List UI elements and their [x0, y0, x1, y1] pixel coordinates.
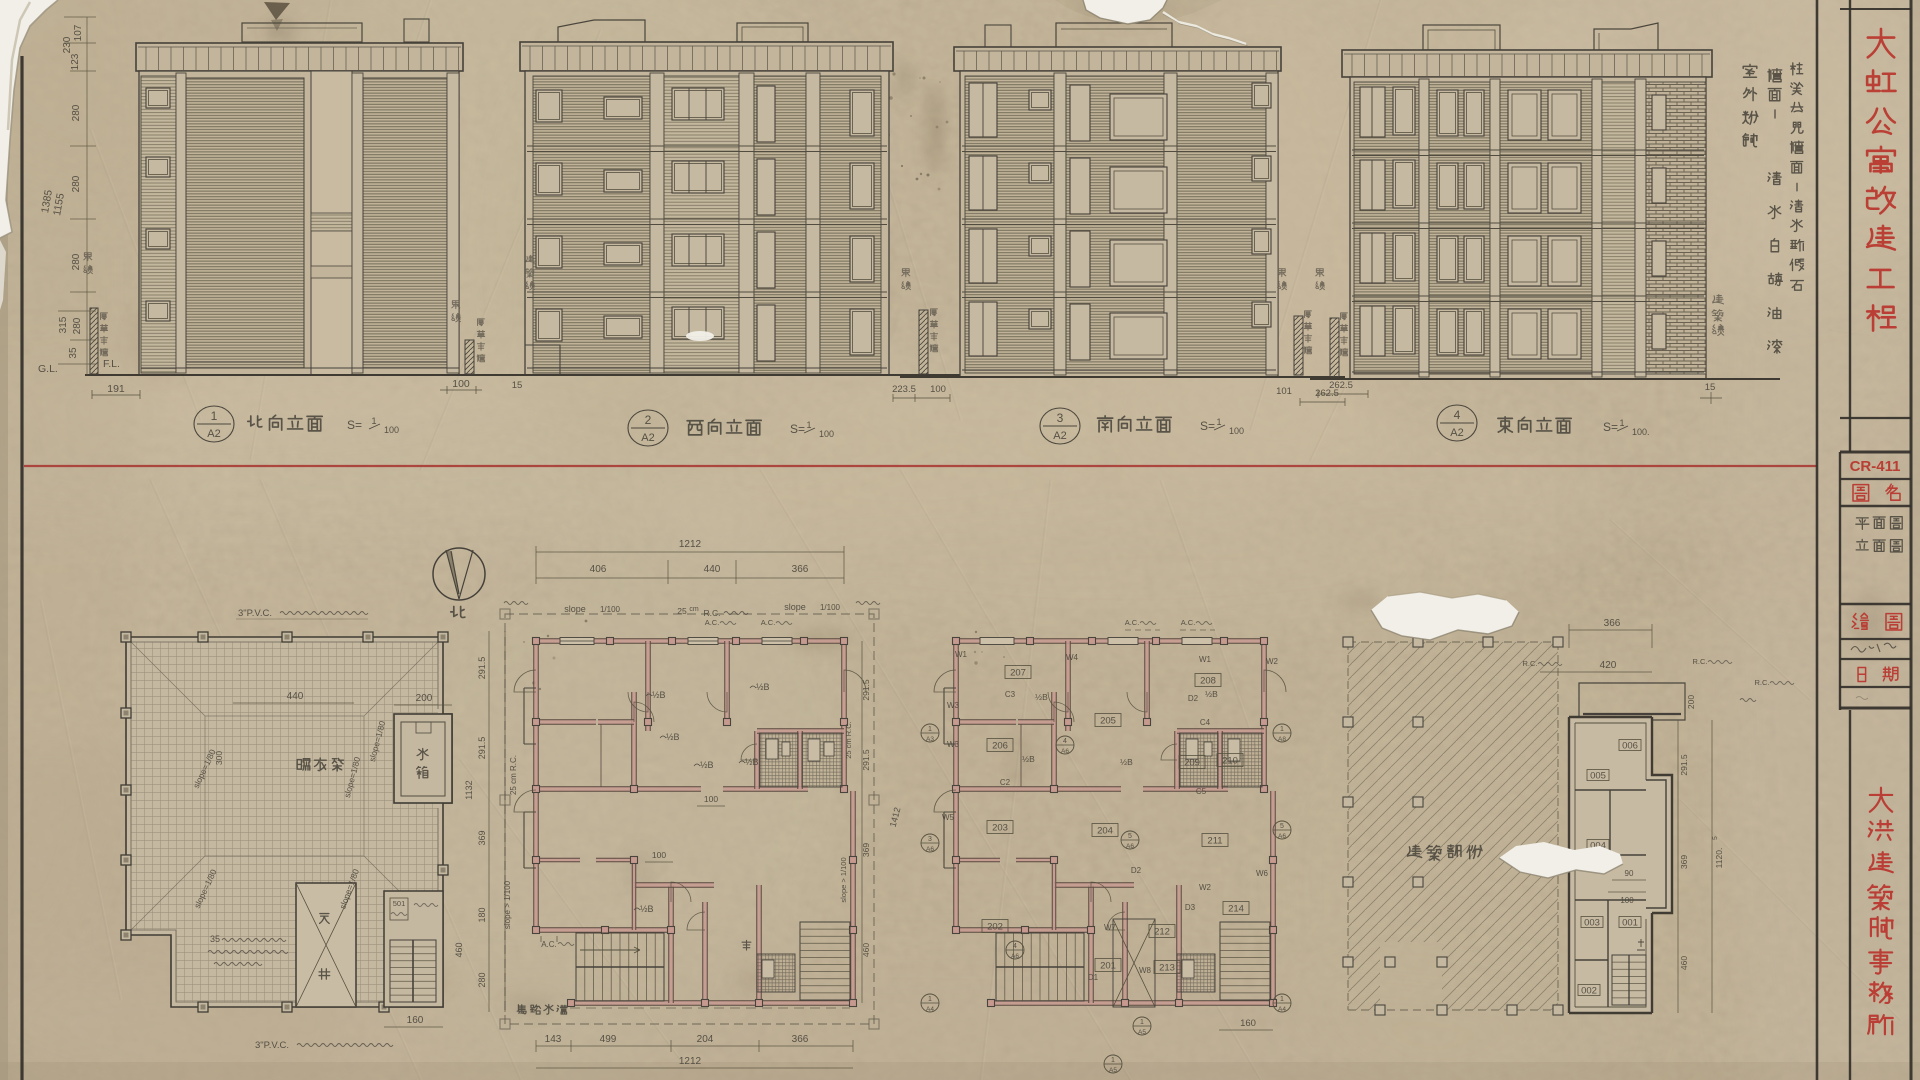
svg-text:½B: ½B	[700, 760, 714, 770]
svg-text:C5: C5	[1196, 787, 1207, 796]
svg-text:F.L.: F.L.	[103, 358, 120, 370]
svg-text:291.5: 291.5	[861, 679, 871, 701]
svg-text:100: 100	[1229, 426, 1244, 436]
svg-text:C4: C4	[1200, 718, 1211, 727]
svg-text:100: 100	[930, 384, 946, 395]
svg-text:143: 143	[545, 1034, 562, 1045]
svg-text:R.C.: R.C.	[1755, 678, 1770, 687]
svg-text:420: 420	[1600, 660, 1617, 671]
svg-text:315: 315	[58, 316, 69, 333]
svg-text:100: 100	[384, 425, 399, 435]
svg-text:209: 209	[1184, 758, 1200, 769]
svg-text:4: 4	[1013, 943, 1017, 950]
svg-text:S=: S=	[347, 418, 362, 432]
svg-text:107: 107	[73, 24, 84, 41]
svg-text:366: 366	[792, 564, 809, 575]
svg-text:1: 1	[806, 420, 811, 430]
svg-text:460: 460	[454, 942, 464, 957]
svg-text:A6: A6	[1278, 833, 1286, 840]
svg-text:291.5: 291.5	[1679, 754, 1689, 776]
svg-text:slope > 1/100: slope > 1/100	[839, 857, 848, 902]
svg-text:1: 1	[1280, 996, 1284, 1003]
svg-text:1132: 1132	[464, 780, 474, 799]
svg-text:100: 100	[452, 378, 470, 390]
svg-text:1: 1	[371, 416, 376, 426]
svg-text:223.5: 223.5	[892, 384, 916, 395]
svg-text:1: 1	[1280, 726, 1284, 733]
svg-text:slope: slope	[784, 602, 806, 612]
svg-text:slope: slope	[564, 604, 586, 614]
svg-text:5: 5	[1712, 836, 1719, 840]
svg-text:W2: W2	[1266, 657, 1279, 666]
svg-text:1: 1	[1140, 1019, 1144, 1026]
svg-text:A8: A8	[1278, 736, 1286, 743]
svg-text:W2: W2	[1199, 883, 1212, 892]
svg-text:101: 101	[1276, 386, 1292, 397]
svg-text:213: 213	[1159, 963, 1175, 974]
svg-text:25: 25	[677, 606, 687, 616]
svg-text:A2: A2	[207, 428, 220, 440]
svg-text:A4: A4	[1278, 1006, 1286, 1013]
svg-text:200: 200	[1686, 695, 1696, 709]
svg-text:A3: A3	[926, 736, 934, 743]
svg-text:160: 160	[1240, 1018, 1256, 1029]
svg-text:S=: S=	[1603, 420, 1618, 434]
svg-text:3"P.V.C.: 3"P.V.C.	[238, 608, 272, 619]
svg-text:½B: ½B	[1035, 692, 1048, 702]
svg-text:W4: W4	[1066, 653, 1079, 662]
svg-text:366: 366	[1604, 618, 1621, 629]
svg-text:D2: D2	[1131, 866, 1142, 875]
svg-text:499: 499	[600, 1034, 617, 1045]
svg-text:5: 5	[1128, 833, 1132, 840]
svg-text:slope > 1/100: slope > 1/100	[503, 880, 512, 929]
svg-text:280: 280	[71, 253, 82, 270]
svg-text:A.C.: A.C.	[1125, 618, 1140, 627]
svg-text:W7: W7	[1104, 923, 1117, 932]
svg-text:A2: A2	[1053, 430, 1066, 442]
svg-text:440: 440	[704, 564, 721, 575]
svg-text:200: 200	[416, 693, 433, 704]
svg-text:406: 406	[590, 564, 607, 575]
svg-text:1212: 1212	[679, 539, 702, 550]
svg-text:160: 160	[407, 1015, 424, 1026]
svg-text:369: 369	[477, 830, 487, 845]
svg-text:280: 280	[71, 104, 82, 121]
svg-text:A6: A6	[1011, 953, 1019, 960]
svg-text:C3: C3	[1005, 690, 1016, 699]
svg-text:1: 1	[928, 996, 932, 1003]
svg-text:204: 204	[697, 1034, 714, 1045]
svg-text:003: 003	[1584, 918, 1600, 929]
svg-text:cm: cm	[689, 606, 699, 613]
svg-text:291.5: 291.5	[477, 737, 487, 760]
svg-text:262.5: 262.5	[1329, 380, 1353, 391]
svg-text:3: 3	[1057, 411, 1064, 425]
svg-text:A4: A4	[926, 1006, 934, 1013]
svg-text:212: 212	[1154, 927, 1170, 938]
svg-text:D3: D3	[1185, 903, 1196, 912]
svg-text:A.C.: A.C.	[541, 940, 557, 949]
svg-text:291.5: 291.5	[861, 749, 871, 771]
svg-text:A5: A5	[1109, 1067, 1117, 1074]
svg-text:1: 1	[1619, 418, 1624, 428]
svg-text:1212: 1212	[679, 1056, 702, 1067]
svg-text:A.C.: A.C.	[1181, 618, 1196, 627]
svg-text:300: 300	[214, 751, 224, 765]
svg-text:100: 100	[652, 850, 666, 860]
svg-text:100: 100	[1620, 896, 1634, 905]
svg-text:460: 460	[1679, 956, 1689, 970]
svg-text:A5: A5	[1138, 1029, 1146, 1036]
svg-text:C2: C2	[1000, 778, 1011, 787]
svg-text:R.C.: R.C.	[1523, 659, 1538, 668]
svg-text:501: 501	[393, 899, 406, 908]
svg-text:D2: D2	[1188, 694, 1199, 703]
svg-text:½B: ½B	[756, 682, 770, 692]
svg-text:W5: W5	[942, 813, 955, 822]
svg-text:202: 202	[987, 922, 1003, 933]
svg-text:A.C.: A.C.	[705, 618, 720, 627]
svg-text:S=: S=	[1200, 419, 1215, 433]
svg-text:S=: S=	[790, 422, 805, 436]
svg-text:G.L.: G.L.	[38, 363, 58, 375]
svg-text:½B: ½B	[1022, 754, 1035, 764]
svg-text:005: 005	[1590, 771, 1606, 782]
svg-text:191: 191	[107, 383, 125, 395]
svg-text:A.C.: A.C.	[761, 618, 776, 627]
svg-text:366: 366	[792, 1034, 809, 1045]
svg-text:1/100: 1/100	[600, 605, 621, 614]
svg-text:1/100: 1/100	[820, 603, 841, 612]
svg-text:210: 210	[1222, 756, 1238, 767]
svg-text:R.C.: R.C.	[1693, 657, 1708, 666]
svg-text:CR-411: CR-411	[1850, 458, 1901, 475]
svg-text:207: 207	[1010, 668, 1026, 679]
svg-text:208: 208	[1200, 676, 1216, 687]
svg-text:4: 4	[1063, 738, 1067, 745]
svg-text:1: 1	[1111, 1057, 1115, 1064]
svg-text:440: 440	[287, 691, 304, 702]
svg-text:5: 5	[1280, 823, 1284, 830]
svg-text:A2: A2	[641, 432, 654, 444]
svg-text:100: 100	[704, 794, 718, 804]
svg-text:214: 214	[1228, 904, 1244, 915]
svg-text:3"P.V.C.: 3"P.V.C.	[255, 1040, 289, 1051]
svg-text:½B: ½B	[745, 757, 759, 767]
svg-text:A6: A6	[1126, 843, 1134, 850]
svg-text:006: 006	[1622, 741, 1638, 752]
svg-text:15: 15	[512, 380, 523, 391]
svg-text:206: 206	[992, 741, 1008, 752]
svg-text:1: 1	[928, 726, 932, 733]
svg-text:204: 204	[1097, 826, 1113, 837]
svg-text:½B: ½B	[1205, 689, 1218, 699]
svg-text:A6: A6	[926, 846, 934, 853]
svg-text:123: 123	[70, 53, 81, 70]
svg-text:1: 1	[211, 409, 218, 423]
svg-text:460: 460	[861, 943, 871, 957]
svg-text:½B: ½B	[640, 904, 654, 914]
svg-text:230: 230	[62, 36, 73, 53]
svg-text:A6: A6	[1061, 748, 1069, 755]
svg-text:001: 001	[1622, 918, 1638, 929]
svg-text:½B: ½B	[652, 690, 666, 700]
svg-text:15: 15	[1705, 382, 1716, 393]
svg-text:180: 180	[477, 907, 487, 922]
svg-text:90: 90	[1625, 869, 1634, 878]
svg-text:203: 203	[992, 823, 1008, 834]
svg-text:280: 280	[72, 317, 83, 334]
svg-text:291.5: 291.5	[477, 657, 487, 680]
svg-text:1: 1	[1216, 417, 1221, 427]
svg-text:3: 3	[928, 836, 932, 843]
svg-text:W6: W6	[1256, 869, 1269, 878]
svg-text:R.C.: R.C.	[704, 608, 721, 618]
svg-text:205: 205	[1100, 716, 1116, 727]
svg-text:211: 211	[1207, 836, 1222, 847]
svg-text:100.: 100.	[1632, 427, 1650, 437]
svg-text:100: 100	[819, 429, 834, 439]
svg-text:25 cm R.C.: 25 cm R.C.	[509, 755, 518, 795]
svg-text:201: 201	[1100, 961, 1116, 972]
svg-text:4: 4	[1454, 408, 1461, 422]
svg-text:½B: ½B	[666, 732, 680, 742]
svg-text:2: 2	[645, 413, 652, 427]
svg-text:280: 280	[71, 175, 82, 192]
svg-text:35: 35	[68, 347, 79, 359]
svg-text:W3: W3	[947, 701, 960, 710]
svg-text:W1: W1	[955, 650, 968, 659]
svg-text:W3: W3	[947, 740, 960, 749]
svg-text:W1: W1	[1199, 655, 1212, 664]
svg-text:A2: A2	[1450, 427, 1463, 439]
svg-text:D1: D1	[1088, 973, 1099, 982]
svg-text:369: 369	[861, 843, 871, 857]
svg-text:35: 35	[210, 934, 220, 944]
svg-text:369: 369	[1679, 855, 1689, 869]
svg-text:002: 002	[1581, 986, 1597, 997]
svg-text:W8: W8	[1139, 966, 1152, 975]
svg-text:25 cm R.C.: 25 cm R.C.	[844, 721, 853, 759]
svg-text:1120.: 1120.	[1714, 848, 1724, 869]
svg-text:½B: ½B	[1120, 757, 1133, 767]
svg-text:280: 280	[477, 972, 487, 987]
